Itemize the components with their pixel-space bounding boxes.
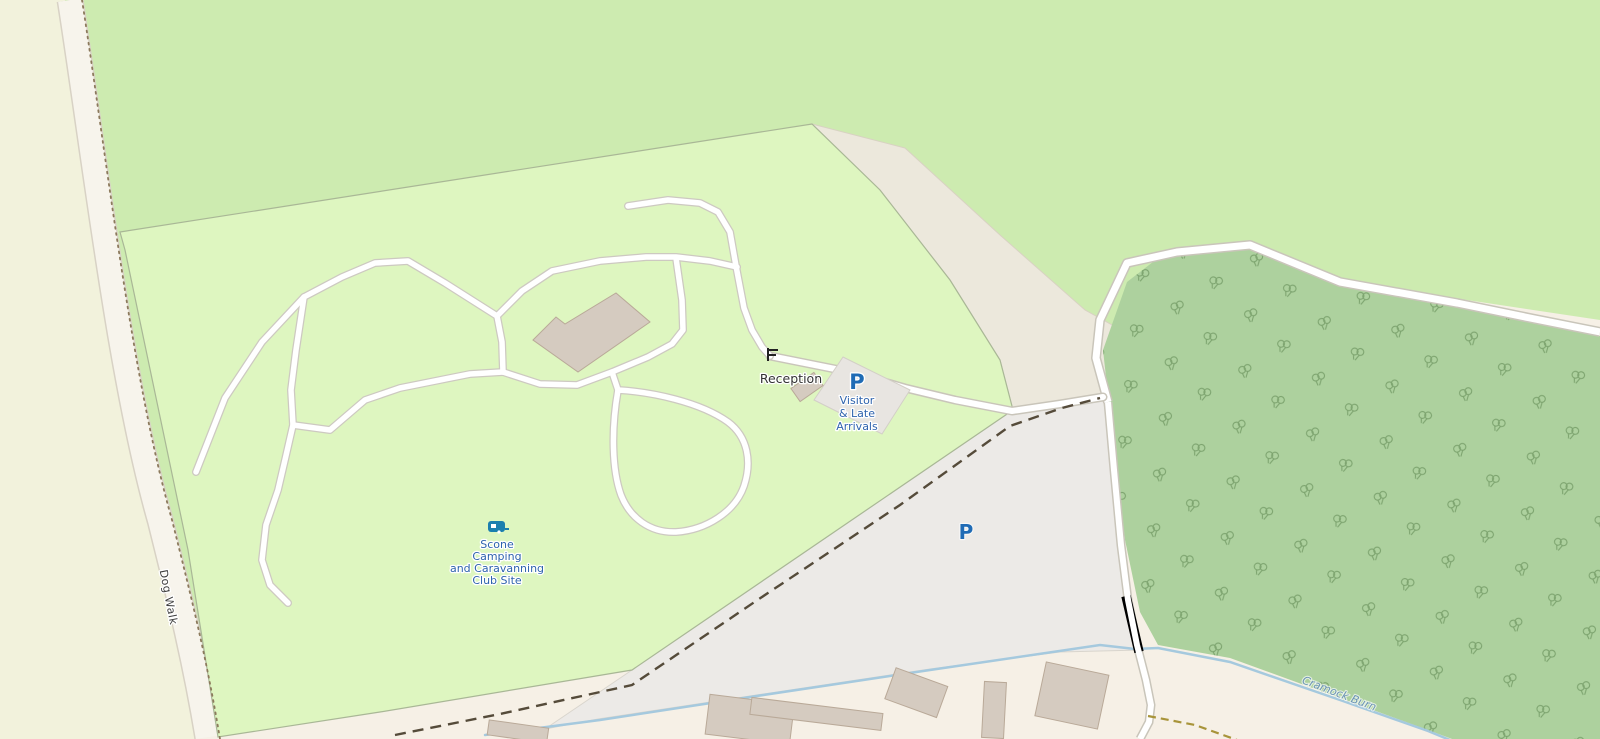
svg-text:Club Site: Club Site — [472, 574, 522, 587]
reception-label: Reception — [760, 371, 822, 386]
svg-text:Arrivals: Arrivals — [836, 420, 878, 433]
svg-text:& Late: & Late — [839, 407, 875, 420]
building — [982, 681, 1007, 738]
parking-letter-icon: P — [849, 370, 864, 394]
map-canvas[interactable]: Dog Walk Reception P Visitor & Late Arri… — [0, 0, 1600, 739]
svg-text:Visitor: Visitor — [840, 394, 875, 407]
parking-letter-icon: P — [959, 520, 974, 544]
